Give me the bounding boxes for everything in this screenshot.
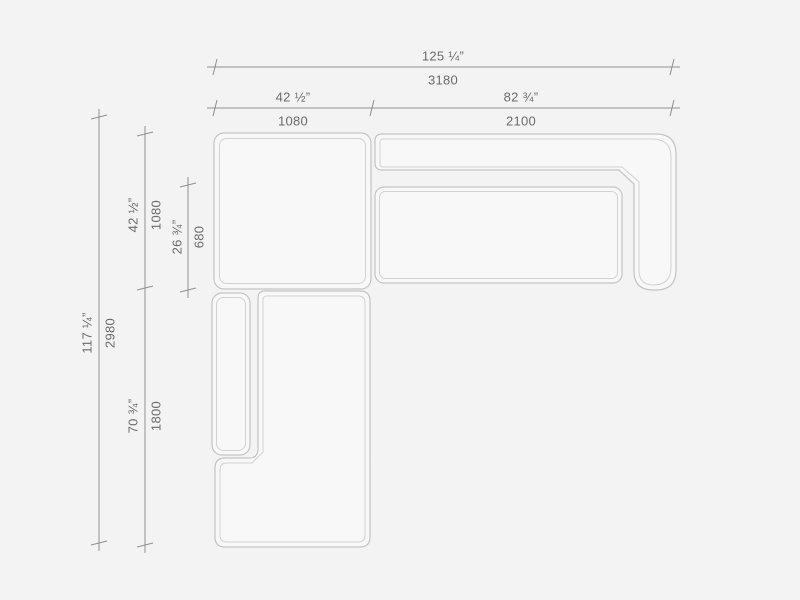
- dimension-lines: [91, 59, 680, 553]
- chaise-backrest: [212, 293, 250, 455]
- dim-corner-depth-chaise-length: [137, 126, 153, 553]
- corner-module: [214, 133, 371, 289]
- dim-label-corner-width-mm: 1080: [278, 115, 308, 128]
- corner-module-outline: [214, 133, 371, 289]
- sofa-top-view: [212, 133, 676, 547]
- dim-label-overall-depth-mm: 2980: [104, 318, 117, 348]
- dim-label-corner-depth-inches: 42 ½”: [127, 198, 140, 233]
- dim-label-overall-width-mm: 3180: [428, 74, 458, 87]
- dim-label-sofa-width-inches: 82 ¾”: [504, 91, 539, 104]
- dim-label-chaise-length-inches: 70 ¾”: [127, 399, 140, 434]
- technical-drawing-canvas: 125 ¼” 3180 42 ½” 1080 82 ¾” 2100 117 ¼”…: [0, 0, 800, 600]
- chaise-backrest-outline: [212, 293, 250, 455]
- dim-label-overall-depth-inches: 117 ¼”: [81, 312, 94, 353]
- right-seat-outline: [375, 187, 622, 283]
- dim-label-seat-depth-inches: 26 ¾”: [171, 220, 184, 255]
- dim-label-sofa-width-mm: 2100: [506, 115, 536, 128]
- right-sofa-seat: [375, 187, 622, 283]
- dim-label-corner-width-inches: 42 ½”: [276, 91, 311, 104]
- dim-label-overall-width-inches: 125 ¼”: [422, 50, 464, 63]
- sofa-dimension-drawing: [0, 0, 800, 600]
- dim-label-seat-depth-mm: 680: [193, 226, 206, 249]
- dim-label-chaise-length-mm: 1800: [150, 401, 163, 431]
- dim-label-corner-depth-mm: 1080: [150, 200, 163, 230]
